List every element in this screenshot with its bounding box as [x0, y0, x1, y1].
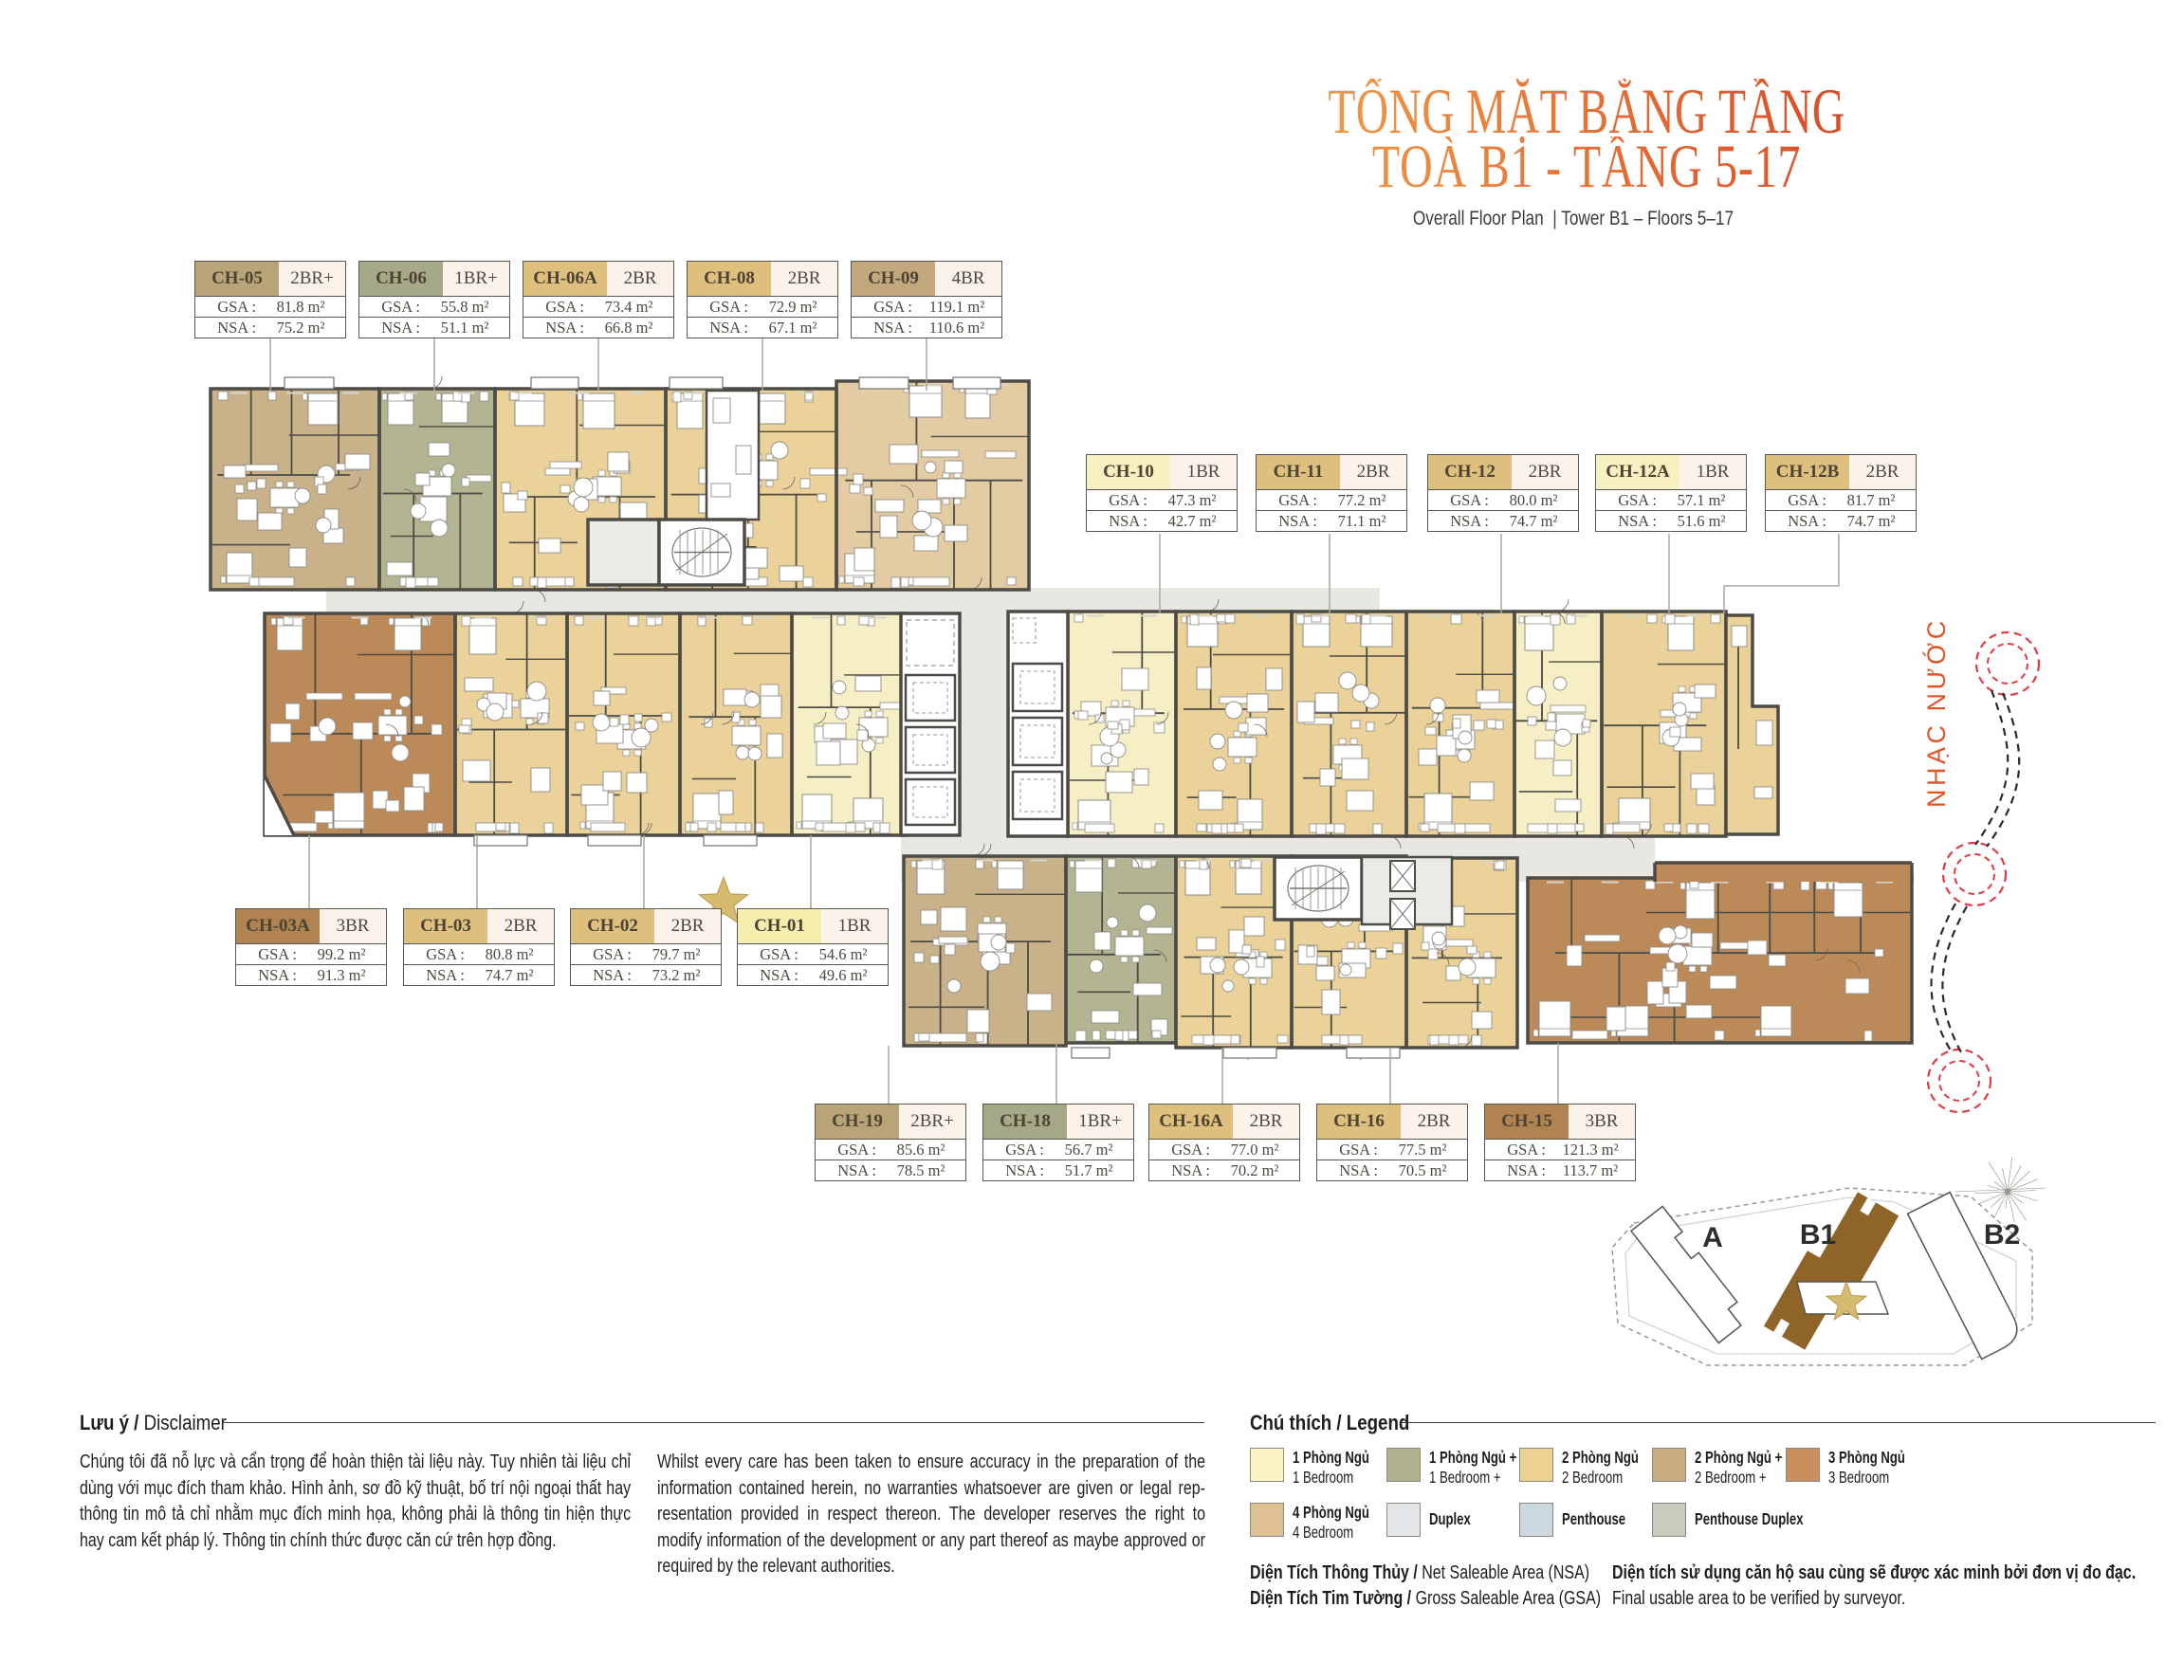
svg-text:A: A [1702, 1222, 1723, 1253]
svg-text:B1: B1 [1800, 1219, 1836, 1251]
svg-text:B2: B2 [1984, 1219, 2020, 1251]
